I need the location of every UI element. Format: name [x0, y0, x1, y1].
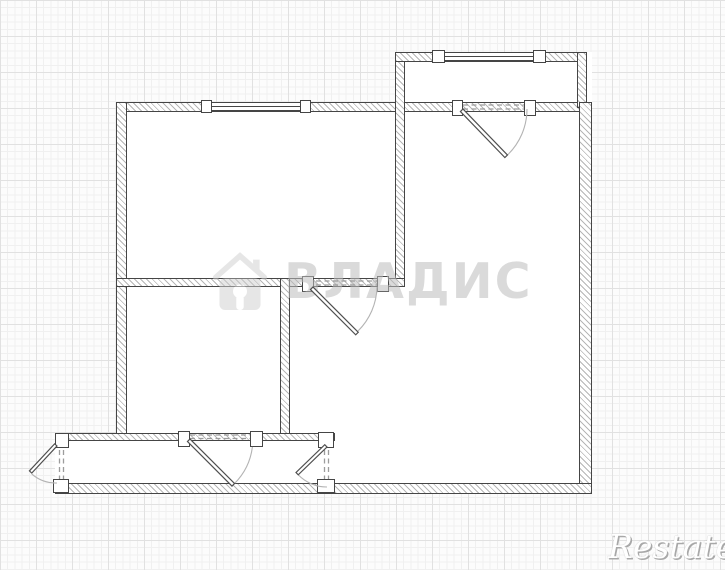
door-room-opening-dashes — [316, 281, 377, 285]
door-balcony-opening-dashes — [463, 105, 524, 109]
door-room-leaf — [310, 287, 358, 335]
door-swing-overlay — [0, 0, 725, 570]
door-partition-opening-dashes — [325, 450, 329, 479]
door-entrance-leaf — [29, 444, 57, 473]
door-middle-opening-dashes — [190, 435, 250, 439]
door-middle-leaf — [187, 439, 234, 486]
door-middle-arc — [235, 447, 253, 484]
door-partition-leaf — [296, 445, 327, 475]
door-room-arc — [358, 287, 377, 331]
door-balcony-leaf — [460, 109, 507, 158]
door-balcony-arc — [508, 109, 528, 155]
door-entrance-arc — [32, 474, 57, 483]
door-entrance-opening-dashes — [60, 450, 64, 479]
floor-plan-canvas: ВЛАДИС Restate — [0, 0, 725, 570]
door-partition-arc — [298, 475, 327, 487]
